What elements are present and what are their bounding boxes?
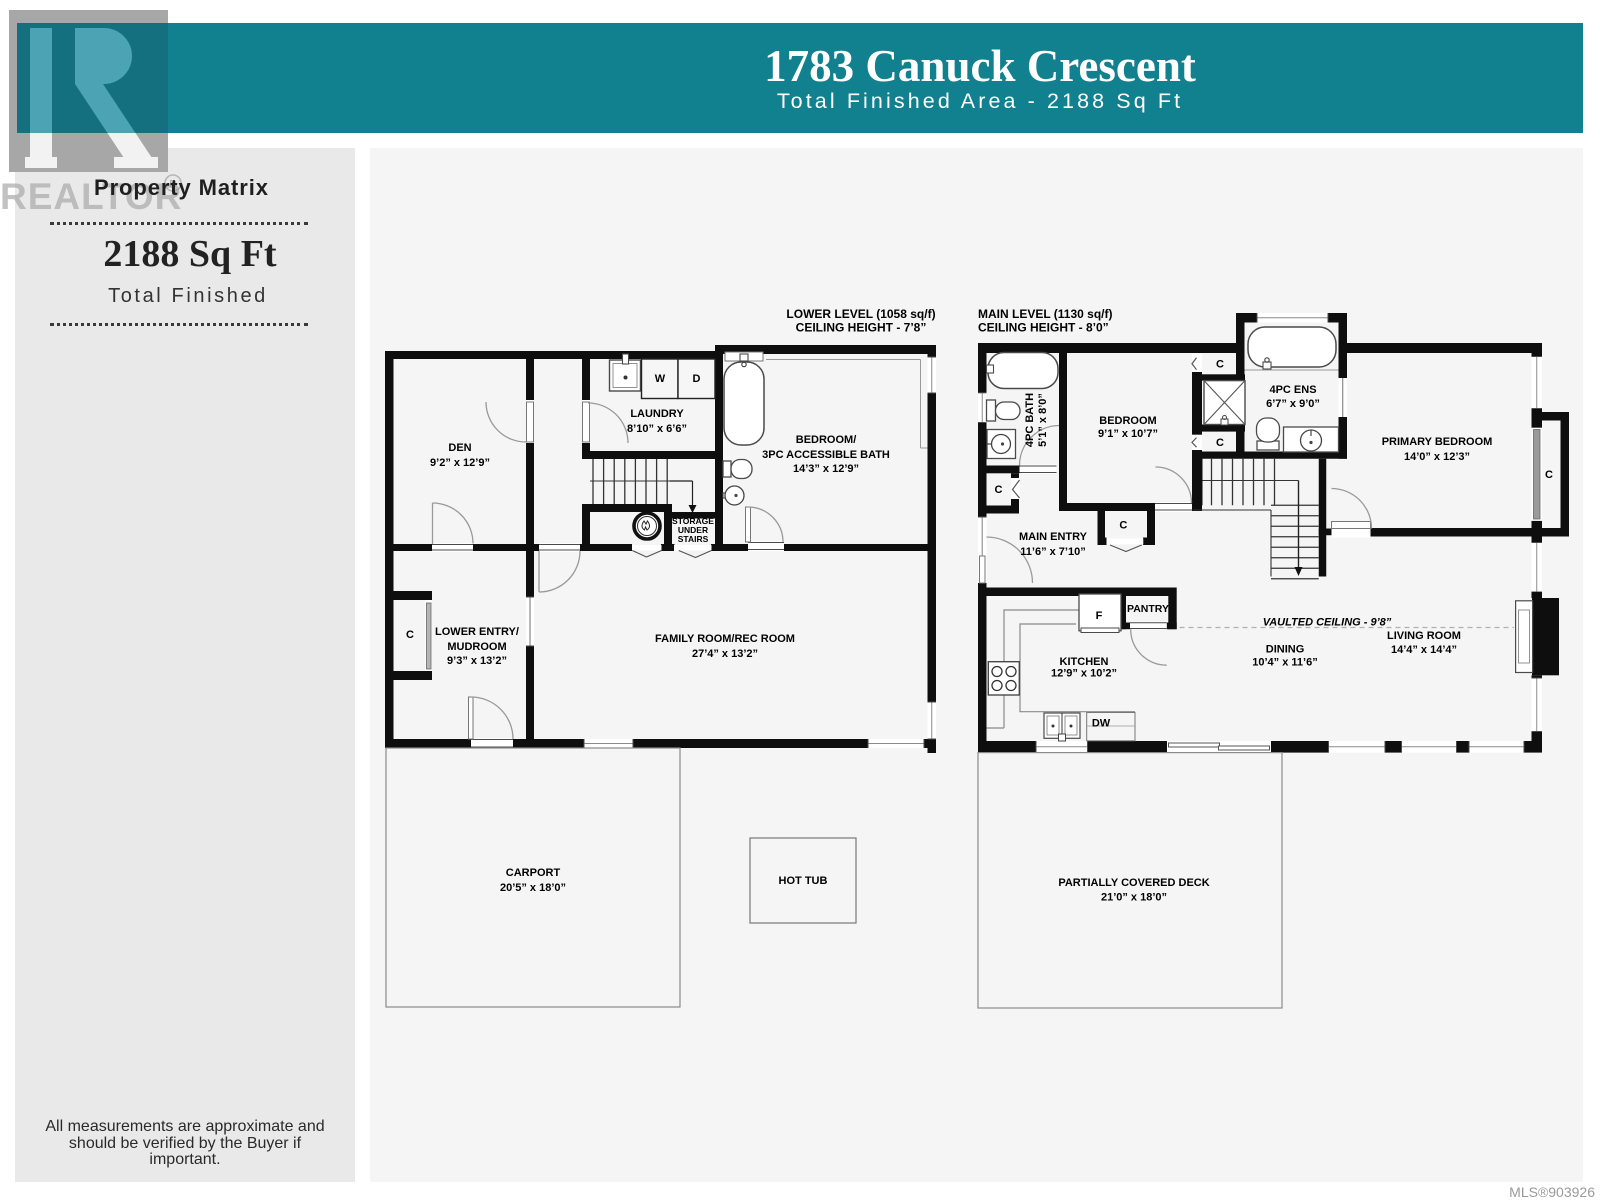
svg-text:DINING: DINING <box>1266 644 1305 656</box>
svg-text:14’4” x 14’4”: 14’4” x 14’4” <box>1391 644 1457 656</box>
svg-text:F: F <box>1096 610 1103 622</box>
svg-text:PARTIALLY COVERED DECK: PARTIALLY COVERED DECK <box>1058 877 1209 889</box>
svg-text:8’10” x 6’6”: 8’10” x 6’6” <box>627 423 687 435</box>
svg-text:C: C <box>1216 359 1224 371</box>
svg-text:14’3” x 12’9”: 14’3” x 12’9” <box>793 463 859 475</box>
svg-text:9’3” x 13’2”: 9’3” x 13’2” <box>447 655 507 667</box>
svg-text:3PC ACCESSIBLE BATH: 3PC ACCESSIBLE BATH <box>762 449 890 461</box>
svg-text:27’4” x 13’2”: 27’4” x 13’2” <box>692 648 758 660</box>
svg-text:4PC BATH: 4PC BATH <box>1024 393 1036 447</box>
svg-text:6’7” x 9’0”: 6’7” x 9’0” <box>1266 398 1320 410</box>
svg-text:BEDROOM: BEDROOM <box>1099 415 1156 427</box>
svg-text:CEILING HEIGHT - 8’0”: CEILING HEIGHT - 8’0” <box>978 321 1109 335</box>
svg-text:DW: DW <box>1092 718 1111 730</box>
svg-text:PANTRY: PANTRY <box>1127 603 1169 615</box>
svg-text:20’5” x 18’0”: 20’5” x 18’0” <box>500 882 566 894</box>
svg-text:9’1” x 10’7”: 9’1” x 10’7” <box>1098 428 1158 440</box>
svg-text:KITCHEN: KITCHEN <box>1060 656 1109 668</box>
svg-text:CEILING HEIGHT - 7’8”: CEILING HEIGHT - 7’8” <box>796 321 927 335</box>
svg-text:C: C <box>406 629 414 641</box>
svg-text:9’2” x 12’9”: 9’2” x 12’9” <box>430 457 490 469</box>
svg-text:PRIMARY BEDROOM: PRIMARY BEDROOM <box>1382 436 1493 448</box>
svg-text:C: C <box>1119 520 1127 532</box>
svg-text:D: D <box>693 373 701 385</box>
svg-text:11’6” x 7’10”: 11’6” x 7’10” <box>1020 546 1085 558</box>
svg-text:LOWER ENTRY/: LOWER ENTRY/ <box>435 626 519 638</box>
svg-text:BEDROOM/: BEDROOM/ <box>796 434 857 446</box>
svg-text:C: C <box>1545 469 1553 481</box>
svg-text:LAUNDRY: LAUNDRY <box>630 408 684 420</box>
svg-text:CARPORT: CARPORT <box>506 867 561 879</box>
svg-text:12’9” x 10’2”: 12’9” x 10’2” <box>1051 668 1117 680</box>
svg-text:HOT TUB: HOT TUB <box>779 875 828 887</box>
svg-text:LIVING ROOM: LIVING ROOM <box>1387 630 1461 642</box>
svg-text:FAMILY ROOM/REC ROOM: FAMILY ROOM/REC ROOM <box>655 633 795 645</box>
svg-text:STAIRS: STAIRS <box>678 534 709 544</box>
svg-text:4PC ENS: 4PC ENS <box>1269 384 1316 396</box>
svg-text:5’1” x 8’0”: 5’1” x 8’0” <box>1037 393 1049 447</box>
svg-text:MUDROOM: MUDROOM <box>447 641 506 653</box>
svg-text:C: C <box>1216 437 1224 449</box>
svg-text:10’4” x 11’6”: 10’4” x 11’6” <box>1252 657 1317 669</box>
svg-text:MAIN ENTRY: MAIN ENTRY <box>1019 531 1088 543</box>
svg-text:C: C <box>995 484 1003 496</box>
svg-text:W: W <box>655 373 666 385</box>
svg-text:MAIN LEVEL (1130 sq/f): MAIN LEVEL (1130 sq/f) <box>978 307 1112 321</box>
svg-text:14’0” x 12’3”: 14’0” x 12’3” <box>1404 451 1470 463</box>
svg-text:VAULTED CEILING - 9’8”: VAULTED CEILING - 9’8” <box>1263 617 1392 629</box>
svg-text:21’0” x 18’0”: 21’0” x 18’0” <box>1101 892 1167 904</box>
svg-text:LOWER LEVEL (1058 sq/f): LOWER LEVEL (1058 sq/f) <box>786 307 935 321</box>
svg-text:DEN: DEN <box>448 442 471 454</box>
